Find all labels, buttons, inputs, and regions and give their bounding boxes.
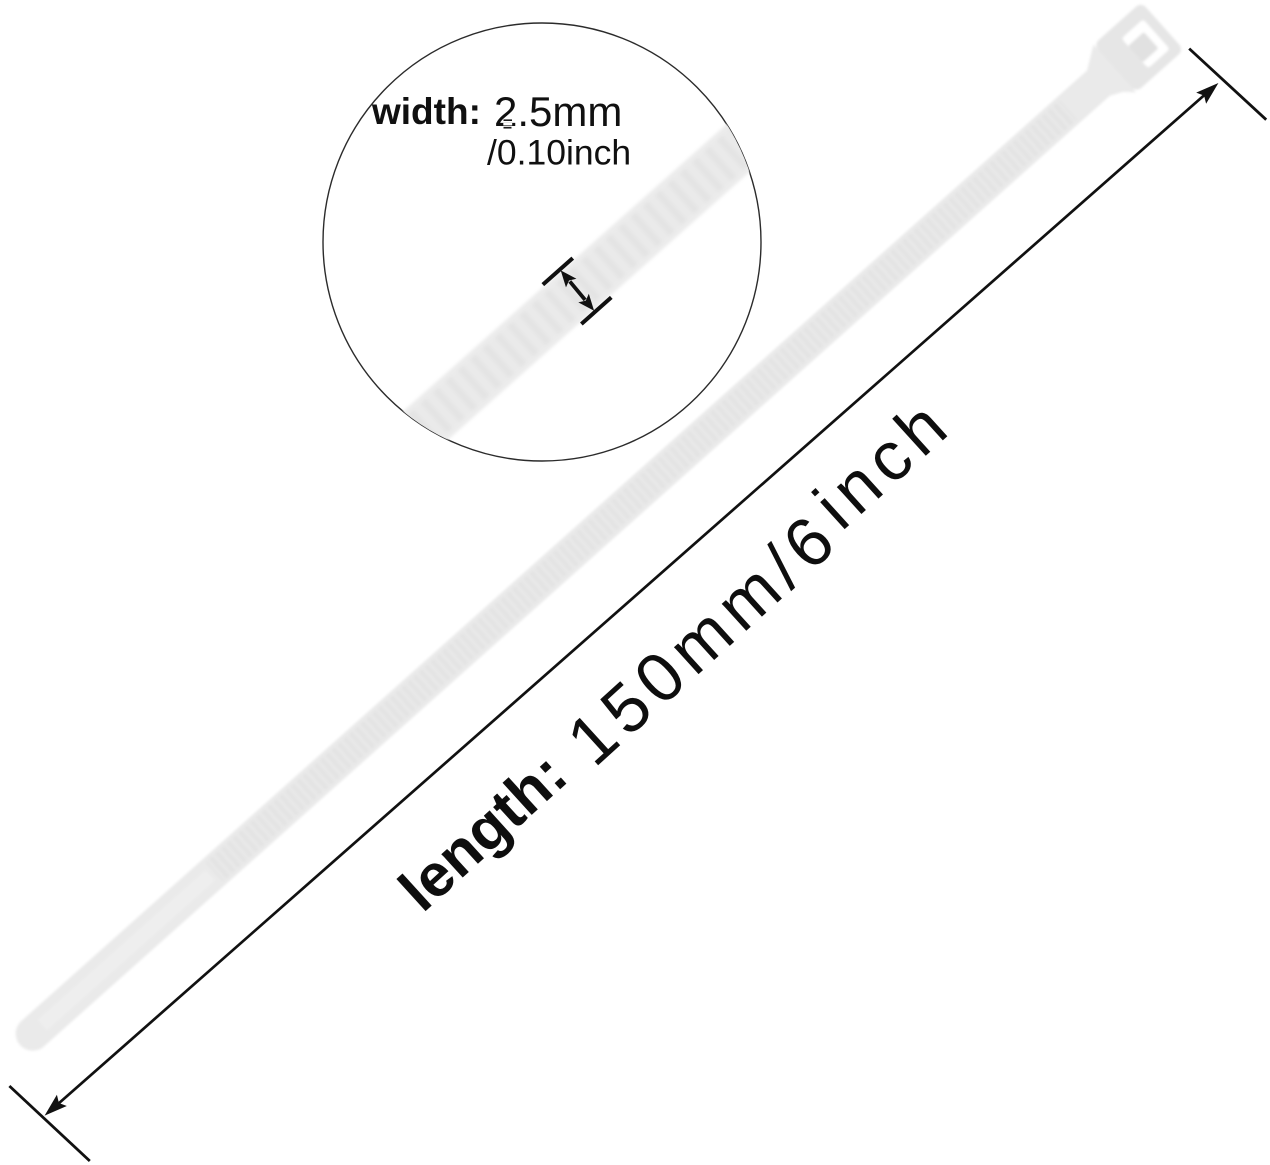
svg-text:width:: width: bbox=[371, 91, 481, 132]
svg-text:/0.10inch: /0.10inch bbox=[487, 133, 631, 173]
svg-text:2.5mm: 2.5mm bbox=[494, 88, 622, 135]
